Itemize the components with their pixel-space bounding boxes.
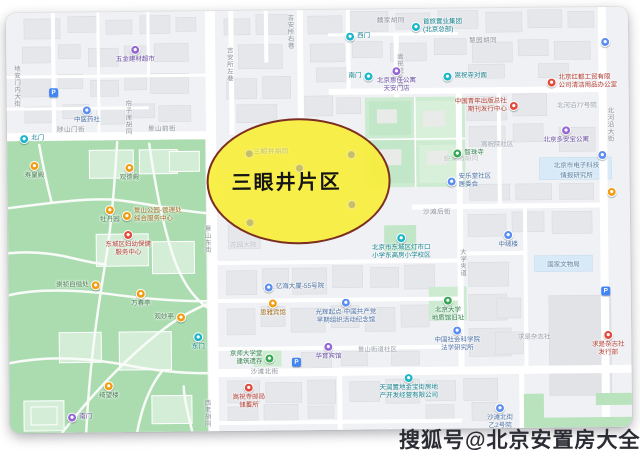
area-label: 花园大院 <box>230 239 256 249</box>
street-label: 魏家胡同 <box>377 14 405 24</box>
parking-marker[interactable]: P <box>49 88 58 97</box>
poi-label: 求是杂志社 发行部 <box>592 341 625 358</box>
street-label: 大学夹道 <box>456 248 466 276</box>
poi-label: 北京红都工贸有限 公司清洁用品办公室 <box>558 73 617 90</box>
poi-marker[interactable] <box>600 37 610 47</box>
poi-label: 中绒楼 <box>498 241 518 250</box>
poi-label: 北京市东城区灯市口 小学东高房小学校区 <box>372 244 431 261</box>
poi-label: 北京大学 地质馆旧址 <box>432 306 465 323</box>
poi-label: 首旅置业集团 (北京总部) <box>423 18 462 35</box>
poi-marker[interactable] <box>391 66 401 76</box>
map-canvas[interactable]: 五金建材超市P中医药社北门寿皇殿观德殿牡丹园景山公园-管理处 综合服务中心东城区… <box>6 7 632 433</box>
poi-marker[interactable] <box>597 150 607 160</box>
poi-marker[interactable] <box>244 383 254 393</box>
street-label: 吉安所右巷 <box>284 14 294 49</box>
poi-marker[interactable] <box>345 32 355 42</box>
poi-marker[interactable] <box>443 296 453 306</box>
poi-marker[interactable] <box>341 298 351 308</box>
street-label: 东黄城根北街 <box>627 189 632 231</box>
poi-marker[interactable] <box>136 289 146 299</box>
poi-label: 南门 <box>348 72 361 81</box>
street-label: 沙滩后街 <box>423 206 451 216</box>
area-label: 北京市电子科技 情报研究所 <box>554 159 600 179</box>
poi-label: 崇祯自缢处 <box>56 281 89 290</box>
poi-marker[interactable] <box>411 22 421 32</box>
poi-label: 中国青年出版总社 期刊发行中心 <box>455 98 507 115</box>
street-label: 景山前街 <box>148 123 176 133</box>
faded-poi-marker[interactable] <box>347 200 356 209</box>
poi-marker[interactable] <box>396 233 406 243</box>
area-label: 景山街道社区 <box>358 343 397 353</box>
poi-label: 华育宾馆 <box>315 353 341 362</box>
poi-marker[interactable] <box>82 105 92 115</box>
poi-marker[interactable] <box>176 312 186 322</box>
faded-poi-marker[interactable] <box>245 149 254 158</box>
poi-label: 五金建材超市 <box>116 56 155 65</box>
poi-label: 寿皇殿 <box>25 172 45 181</box>
poi-marker[interactable] <box>495 403 505 413</box>
poi-label: 万春亭 <box>131 300 151 309</box>
poi-label: 嵩祝寺对面 <box>454 72 487 81</box>
poi-marker[interactable] <box>264 282 274 292</box>
poi-marker[interactable] <box>452 149 462 159</box>
poi-label: 安乐堂社区 居委会 <box>459 173 492 190</box>
poi-label: 绮望楼 <box>99 392 119 401</box>
poi-label: 京师大学堂 建筑遗存 <box>230 350 263 367</box>
poi-marker[interactable] <box>67 413 77 423</box>
street-label: 帘子库胡同 <box>122 100 132 135</box>
poi-marker[interactable] <box>91 280 101 290</box>
street-label: 西老胡同 <box>201 399 211 427</box>
parking-marker[interactable]: P <box>601 286 610 295</box>
poi-label: 南门 <box>79 413 92 422</box>
poi-label: 观德殿 <box>120 174 140 183</box>
map-overlay: 五金建材超市P中医药社北门寿皇殿观德殿牡丹园景山公园-管理处 综合服务中心东城区… <box>6 7 632 433</box>
area-label: 国家文物局 <box>547 258 580 268</box>
poi-marker[interactable] <box>193 332 203 342</box>
poi-marker[interactable] <box>123 230 133 240</box>
screenshot-stage: 五金建材超市P中医药社北门寿皇殿观德殿牡丹园景山公园-管理处 综合服务中心东城区… <box>0 0 640 456</box>
poi-label: 北京多安宝公寓 <box>543 136 589 145</box>
poi-label: 中医药社 <box>74 116 100 125</box>
poi-marker[interactable] <box>509 101 519 111</box>
poi-marker[interactable] <box>323 342 333 352</box>
street-label: 陟山门街 <box>57 123 85 133</box>
poi-marker[interactable] <box>105 205 115 215</box>
poi-label: 景山公园-管理处 综合服务中心 <box>134 207 182 224</box>
street-label: 景山东街 <box>201 225 211 253</box>
poi-marker[interactable] <box>561 125 571 135</box>
poi-marker[interactable] <box>603 330 613 340</box>
street-label: 慧园胡同 <box>469 34 497 44</box>
street-label: 三眼井胡同 <box>254 145 289 155</box>
faded-poi-marker[interactable] <box>245 218 254 227</box>
poi-marker[interactable] <box>130 45 140 55</box>
poi-label: 北京惠佳公寓 天安门店 <box>377 77 416 94</box>
poi-marker[interactable] <box>363 71 373 81</box>
poi-marker[interactable] <box>264 353 274 363</box>
area-label: 求是杂志社 <box>518 331 551 341</box>
map-inner: 五金建材超市P中医药社北门寿皇殿观德殿牡丹园景山公园-管理处 综合服务中心东城区… <box>6 7 632 433</box>
poi-marker[interactable] <box>122 211 132 221</box>
poi-marker[interactable] <box>452 326 462 336</box>
poi-label: 东门 <box>192 343 205 352</box>
street-label: 吉安所左巷 <box>223 47 233 82</box>
poi-label: 光辉起点·中国共产党 早期组织活动纪念馆 <box>316 308 377 326</box>
poi-label: 中国社会科学院 法学研究所 <box>434 336 480 353</box>
poi-marker[interactable] <box>503 230 513 240</box>
area-label: 嵩祝院社区 <box>481 138 514 148</box>
poi-label: 思雅宾馆 <box>260 309 286 318</box>
poi-label: 天润置地金宝街房地 产开发经营有限公司 <box>379 384 438 401</box>
sohu-watermark: 搜狐号@北京安置房大全 <box>399 424 640 454</box>
parking-marker[interactable]: P <box>292 358 301 367</box>
faded-poi-marker[interactable] <box>347 150 356 159</box>
poi-marker[interactable] <box>124 163 134 173</box>
poi-label: 智珠寺 <box>464 149 484 158</box>
poi-marker[interactable] <box>385 428 395 433</box>
street-label: 北河沿大街 <box>604 107 614 142</box>
poi-marker[interactable] <box>547 78 557 88</box>
poi-label: 西门 <box>357 32 370 41</box>
poi-label: 亿海大厦-55号院 <box>276 283 324 292</box>
poi-marker[interactable] <box>29 161 39 171</box>
poi-marker[interactable] <box>442 72 452 82</box>
poi-marker[interactable] <box>19 134 29 144</box>
street-label: 地安门内大街 <box>10 65 20 107</box>
map-photo: 五金建材超市P中医药社北门寿皇殿观德殿牡丹园景山公园-管理处 综合服务中心东城区… <box>0 0 640 459</box>
region-label: 三眼井片区 <box>231 165 341 195</box>
area-label: 北河沿77号院 <box>557 99 597 109</box>
poi-label: 东城区妇幼保健 服务中心 <box>105 241 151 258</box>
poi-label: 嵩祝寺邮局 储蓄所 <box>233 394 266 411</box>
poi-marker[interactable] <box>447 177 457 187</box>
poi-label: 观妙亭 <box>154 313 174 322</box>
poi-marker[interactable] <box>104 381 114 391</box>
poi-marker[interactable] <box>268 298 278 308</box>
poi-marker[interactable] <box>404 373 414 383</box>
poi-label: 北门 <box>31 135 44 144</box>
poi-marker[interactable] <box>607 187 617 197</box>
poi-label: 牡丹园 <box>100 216 120 225</box>
